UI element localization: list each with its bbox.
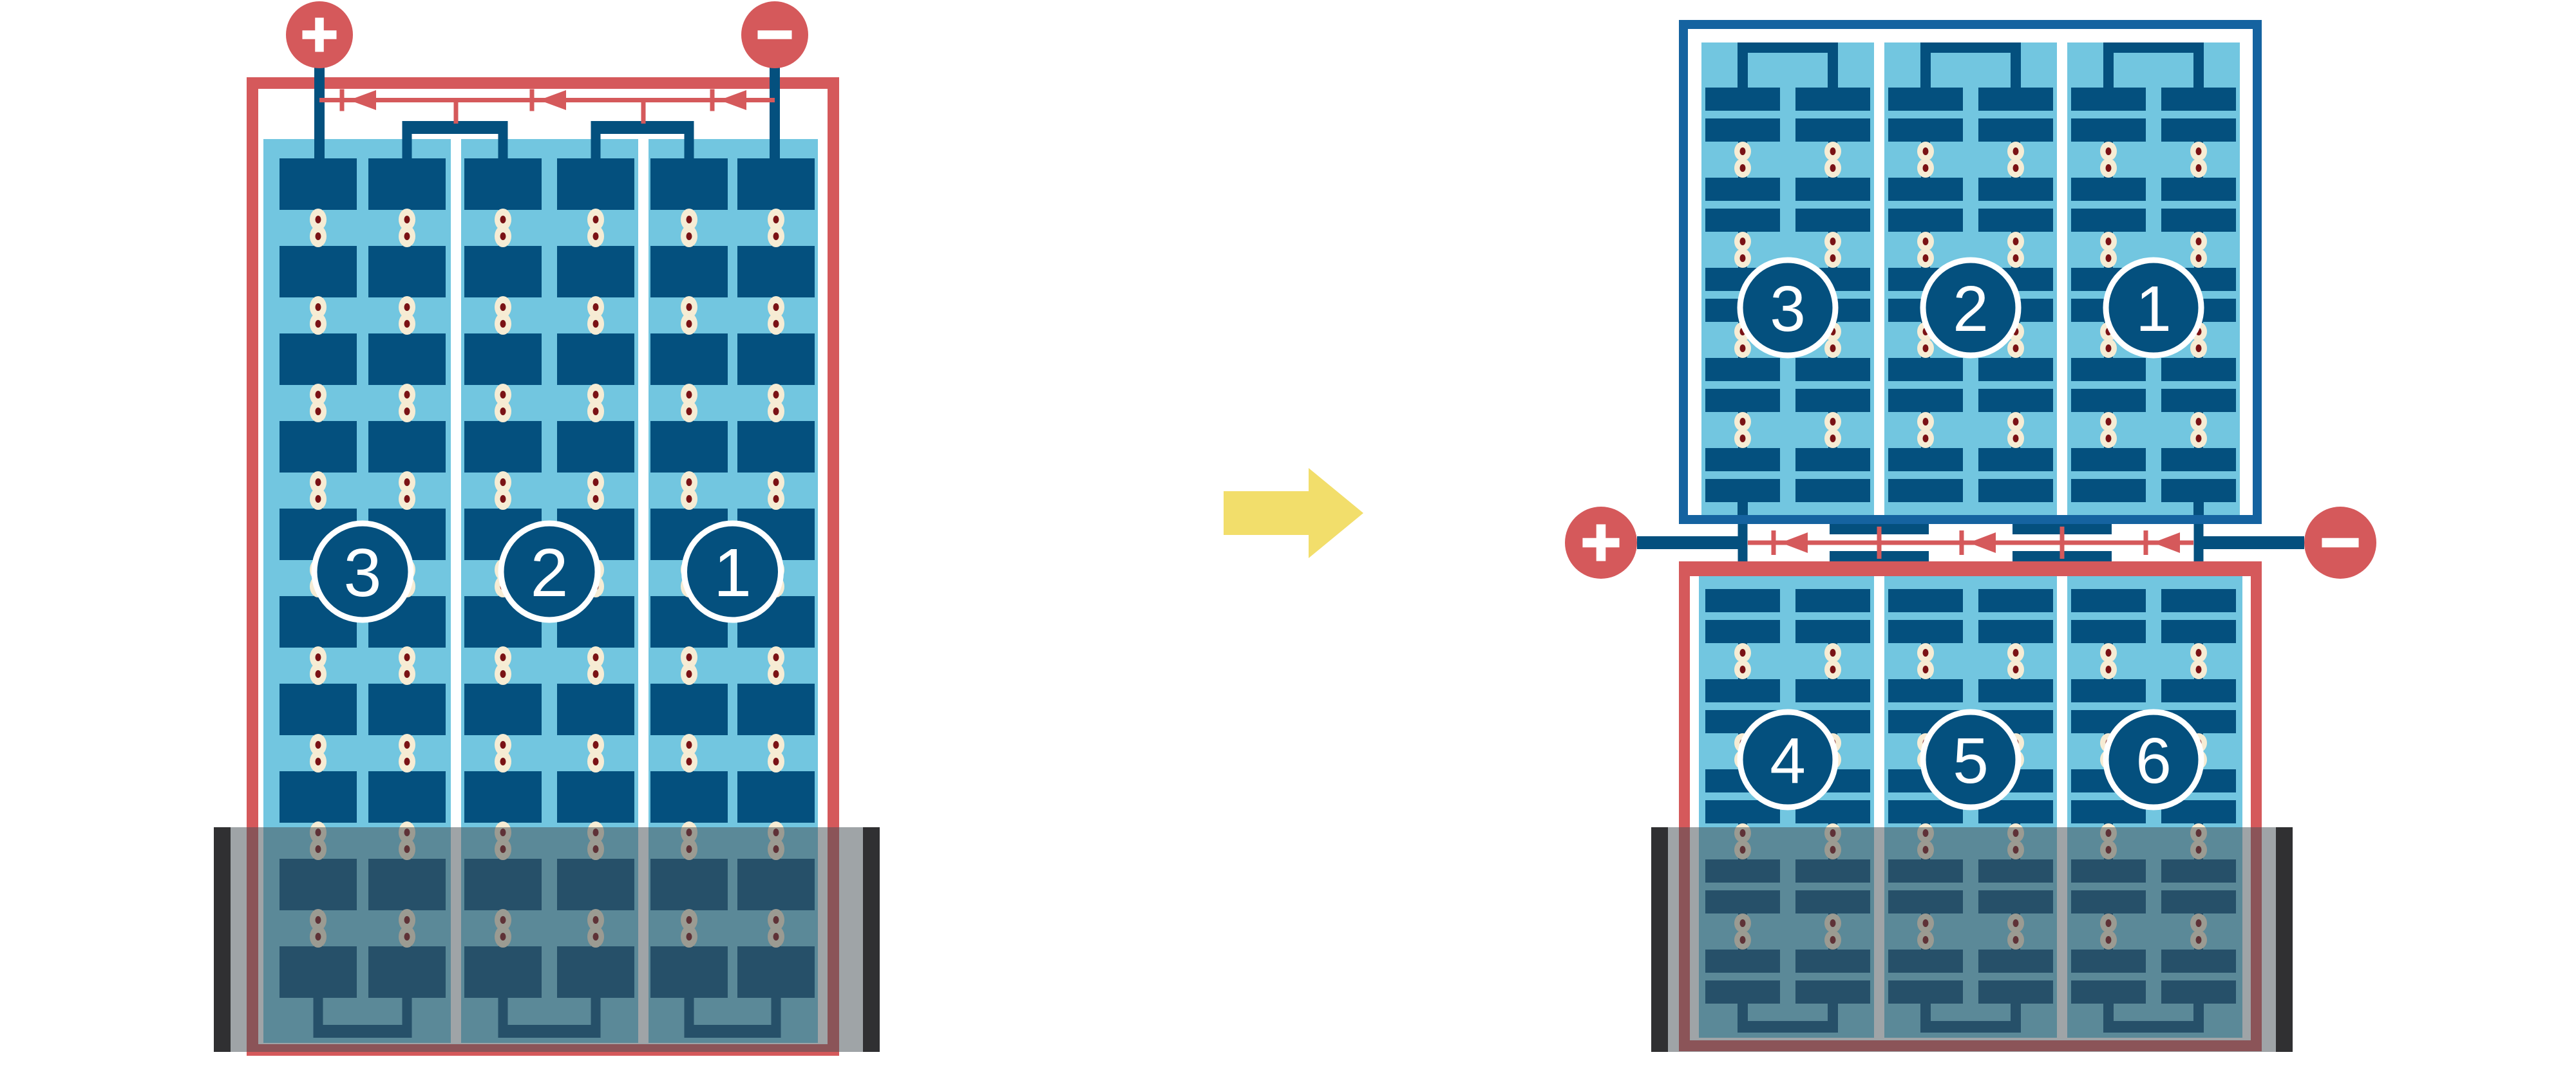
plate [1888,448,1963,471]
flow-drop [454,102,459,124]
rivet-dot-center [316,303,321,311]
rivet-dot-center [316,495,321,503]
plate [464,771,542,823]
plate [1705,620,1780,643]
plate [650,684,728,735]
plate [1705,448,1780,471]
plate [368,333,446,385]
plate [1978,389,2053,412]
overlay-glass [214,827,880,1052]
negative-post [770,67,780,160]
plate [1978,448,2053,471]
rivet-dot-center [687,741,692,749]
cell-number-label: 2 [1953,273,1989,345]
rivet-dot-center [2013,238,2019,245]
flow-arrowhead-left [2153,532,2180,553]
plate [464,684,542,735]
plate [1795,358,1870,381]
rivet-dot-center [687,670,692,678]
plate [1705,358,1780,381]
rivet-dot-center [1740,254,1746,262]
plate [1795,620,1870,643]
rivet-dot-center [687,216,692,223]
positive-tab [1738,524,1748,561]
overlay-end-bar [1651,827,1668,1052]
rivet-dot-center [2013,344,2019,352]
battery-diagram-stage: 321321456 [0,0,2576,1068]
rivet-dot-center [1740,164,1746,172]
plate [2071,679,2146,702]
rivet-dot-center [1923,147,1929,155]
plate [1795,389,1870,412]
rivet-dot-center [500,216,506,223]
plate [279,246,357,297]
rivet-dot-center [593,232,599,240]
plate [1888,358,1963,381]
plate [737,421,815,473]
negative-terminal-icon [2304,507,2376,579]
plate [368,246,446,297]
rivet-dot-center [404,670,410,678]
plate [557,421,634,473]
arrow-head [1309,468,1363,558]
rivet-dot-center [1740,344,1746,352]
cell-number-label: 3 [344,535,382,611]
plate [279,771,357,823]
rivet-dot-center [2013,666,2019,673]
positive-post [1738,502,1748,516]
rivet-dot-center [2196,344,2202,352]
rivet-dot-center [1830,649,1836,657]
plate [2161,178,2236,201]
rivet-dot-center [500,320,506,328]
top-loop-leg [2193,53,2204,88]
rivet-dot-center [316,408,321,415]
rivet-dot-center [1923,649,1929,657]
plate [1888,389,1963,412]
plate [1978,88,2053,111]
plate [464,333,542,385]
busbar-loop-leg [685,134,694,160]
rivet-dot-center [500,232,506,240]
flow-tick [530,89,535,111]
rivet-dot-center [2013,254,2019,262]
plate [1888,209,1963,232]
rivet-dot-center [2196,649,2202,657]
panel-frame-bottom [1679,515,2262,524]
plate [2161,358,2236,381]
plate [557,333,634,385]
rivet-dot-center [500,391,506,398]
rivet-dot-center [1740,649,1746,657]
rivet-dot-center [2196,238,2202,245]
rivet-dot-center [316,232,321,240]
rivet-dot-center [773,216,779,223]
transform-arrow-icon [1224,468,1363,558]
rivet-dot-center [500,478,506,486]
plate [1888,118,1963,142]
negative-terminal-icon [741,1,808,68]
cell-number-label: 4 [1770,725,1806,797]
plate [2161,389,2236,412]
rivet-dot-center [1923,418,1929,426]
rivet-dot-center [404,216,410,223]
rivet-dot-center [2196,164,2202,172]
plate [1978,178,2053,201]
rivet-dot-center [1830,344,1836,352]
plate [737,333,815,385]
rivet-dot-center [593,495,599,503]
rivet-dot-center [2013,649,2019,657]
overlay-glass [1651,827,2293,1052]
rivet-dot-center [1830,147,1836,155]
rivet-dot-center [593,670,599,678]
plate [2161,118,2236,142]
rivet-dot-center [687,758,692,765]
rivet-dot-center [500,408,506,415]
plate [464,246,542,297]
overlay-end-bar [214,827,231,1052]
plate [650,421,728,473]
top-loop-leg [2103,53,2114,88]
rivet-dot-center [404,741,410,749]
rivet-dot-center [316,320,321,328]
top-loop-leg [1738,53,1748,88]
rivet-dot-center [773,408,779,415]
rivet-dot-center [1830,164,1836,172]
positive-post [1637,536,1738,549]
rivet-dot-center [593,478,599,486]
rivet-dot-center [593,758,599,765]
plate [2161,88,2236,111]
plate [368,158,446,210]
plate [1978,479,2053,502]
current-direction-arrows [1748,527,2193,559]
rivet-dot-center [316,758,321,765]
plate [1888,679,1963,702]
rivet-dot-center [773,478,779,486]
current-direction-arrows [319,89,775,124]
plus-sign [1596,524,1606,561]
plate [2071,358,2146,381]
rivet-dot-center [2106,649,2112,657]
rivet-dot-center [593,320,599,328]
rivet-dot-center [500,758,506,765]
rivet-dot-center [404,758,410,765]
rivet-dot-center [2013,147,2019,155]
plate [368,421,446,473]
rivet-dot-center [2106,238,2112,245]
rivet-dot-center [2196,254,2202,262]
flow-tick [1772,530,1776,555]
plate [2161,479,2236,502]
plate [1705,679,1780,702]
rivet-dot-center [2106,147,2112,155]
panel-frame [1679,20,2262,29]
plate [279,333,357,385]
plate [737,771,815,823]
rivet-dot-center [2196,147,2202,155]
rivet-dot-center [1830,238,1836,245]
rivet-dot-center [2106,666,2112,673]
cell-number-label: 6 [2136,725,2172,797]
plate [2071,88,2146,111]
rivet-dot-center [773,391,779,398]
flow-arrowhead-left [1969,532,1996,553]
plate [279,158,357,210]
rivet-dot-center [773,303,779,311]
top-loop-leg [2011,53,2021,88]
rivet-dot-center [687,653,692,661]
rivet-dot-center [687,408,692,415]
rivet-dot-center [316,670,321,678]
plate [2071,118,2146,142]
rivet-dot-center [404,495,410,503]
rivet-dot-center [2106,164,2112,172]
positive-terminal-icon [286,1,353,68]
rivet-dot-center [773,741,779,749]
rivet-dot-center [593,216,599,223]
cell-number-label: 1 [714,535,752,611]
plate [737,684,815,735]
plate [1795,589,1870,612]
plate [2071,479,2146,502]
plate [1795,178,1870,201]
plate [1705,589,1780,612]
busbar-loop-leg [402,134,412,160]
right-battery-top-panel: 321 [1679,20,2262,524]
cell-number-label: 2 [531,535,569,611]
rivet-dot-center [404,320,410,328]
cell-separator [1874,42,1884,515]
case-overlay [214,827,880,1052]
plate [279,421,357,473]
rivet-dot-center [500,670,506,678]
rivet-dot-center [404,478,410,486]
rivet-dot-center [773,653,779,661]
plate [650,771,728,823]
rivet-dot-center [687,495,692,503]
rivet-dot-center [500,653,506,661]
plate [2071,389,2146,412]
rivet-dot-center [593,741,599,749]
flow-drop [641,102,646,124]
top-loop-bar [2103,42,2204,53]
arrow-shaft [1224,491,1309,535]
minus-sign [757,30,791,39]
rivet-dot-center [2013,435,2019,442]
rivet-dot-center [773,495,779,503]
plate [557,684,634,735]
plate [1888,479,1963,502]
rivet-dot-center [500,741,506,749]
overlay-end-bar [2276,827,2293,1052]
panel-frame [2253,20,2262,524]
plate [557,771,634,823]
rivet-dot-center [2196,435,2202,442]
flow-arrowhead-left [539,90,566,110]
plate [1795,88,1870,111]
top-loop-leg [1920,53,1931,88]
plate [464,421,542,473]
plate [368,684,446,735]
plate [368,771,446,823]
plate [1978,209,2053,232]
plate [1705,118,1780,142]
plate [1888,178,1963,201]
rivet-dot-center [593,408,599,415]
plate [557,158,634,210]
rivet-dot-center [1740,666,1746,673]
rivet-dot-center [1740,418,1746,426]
plate [2161,209,2236,232]
rivet-dot-center [1923,435,1929,442]
plate [1888,620,1963,643]
rivet-dot-center [404,391,410,398]
rivet-dot-center [593,391,599,398]
rivet-dot-center [316,653,321,661]
rivet-dot-center [1923,344,1929,352]
rivet-dot-center [1923,666,1929,673]
plate [650,246,728,297]
rivet-dot-center [1740,147,1746,155]
top-loop-bar [1920,42,2021,53]
rivet-dot-center [1830,435,1836,442]
panel-frame-top [1679,561,2262,576]
rivet-dot-center [500,495,506,503]
plate [1795,118,1870,142]
rivet-dot-center [1830,418,1836,426]
flow-tick [710,89,715,111]
cell-number-label: 3 [1770,273,1806,345]
rivet-dot-center [687,391,692,398]
flow-arrowhead-left [719,90,746,110]
rivet-dot-center [687,303,692,311]
rivet-dot-center [2106,344,2112,352]
plate [557,246,634,297]
plate [2071,209,2146,232]
rivet-dot-center [773,670,779,678]
rivet-dot-center [1923,238,1929,245]
rivet-dot-center [1740,435,1746,442]
plate [1705,479,1780,502]
rivet-dot-center [773,758,779,765]
rivet-dot-center [2196,418,2202,426]
plate [737,246,815,297]
battery-connection-diagram: 321321456 [0,0,2576,1068]
rivet-dot-center [687,232,692,240]
plate [2161,589,2236,612]
plate [1978,358,2053,381]
plate [1705,88,1780,111]
top-loop-bar [1738,42,1838,53]
cell-number-label: 1 [2136,273,2172,345]
rivet-dot-center [2106,435,2112,442]
rivet-dot-center [1830,666,1836,673]
busbar-loop-leg [498,134,508,160]
plate [1795,479,1870,502]
busbar-loop-leg [591,134,601,160]
minus-sign [2322,538,2358,548]
rivet-dot-center [404,653,410,661]
rivet-dot-center [316,391,321,398]
rivet-dot-center [404,303,410,311]
rivet-dot-center [2013,164,2019,172]
rivet-dot-center [593,303,599,311]
plate [1978,679,2053,702]
plus-sign [315,17,324,52]
rivet-dot-center [687,478,692,486]
rivet-dot-center [1923,164,1929,172]
plate [1978,589,2053,612]
plate [1978,118,2053,142]
rivet-dot-center [316,216,321,223]
rivet-dot-center [1923,254,1929,262]
top-loop-leg [1828,53,1838,88]
flow-drop [2060,527,2065,559]
plate [737,158,815,210]
negative-tab [2194,524,2204,561]
rivet-dot-center [404,408,410,415]
cell-number-label: 5 [1953,725,1989,797]
plate [2161,620,2236,643]
rivet-dot-center [2196,666,2202,673]
plate [1888,88,1963,111]
plate [1795,448,1870,471]
plate [2161,448,2236,471]
plate [2071,589,2146,612]
plate [1795,679,1870,702]
plate [2071,178,2146,201]
flow-arrowhead-left [1781,532,1808,553]
negative-post [2193,502,2204,516]
positive-post [314,67,325,160]
rivet-dot-center [316,741,321,749]
negative-post [2203,536,2304,549]
rivet-dot-center [2013,418,2019,426]
rivet-dot-center [316,478,321,486]
rivet-dot-center [687,320,692,328]
rivet-dot-center [2106,418,2112,426]
rivet-dot-center [2106,254,2112,262]
rivet-dot-center [773,232,779,240]
flow-drop [1877,527,1882,559]
plate [279,684,357,735]
plate [1705,389,1780,412]
plate [2161,679,2236,702]
panel-frame [1679,20,1688,524]
plate [2071,448,2146,471]
rivet-dot-center [1740,238,1746,245]
overlay-end-bar [863,827,880,1052]
cell-separator [2057,42,2067,515]
rivet-dot-center [593,653,599,661]
plate [464,158,542,210]
positive-terminal-icon [1565,507,1637,579]
rivet-dot-center [773,320,779,328]
flow-tick [1960,530,1964,555]
plate [650,333,728,385]
plate [1705,178,1780,201]
rivet-dot-center [1830,254,1836,262]
plate [1888,589,1963,612]
rivet-dot-center [404,232,410,240]
flow-tick [340,89,345,111]
rivet-dot-center [500,303,506,311]
plate [650,158,728,210]
plate [2071,620,2146,643]
plate [1705,209,1780,232]
